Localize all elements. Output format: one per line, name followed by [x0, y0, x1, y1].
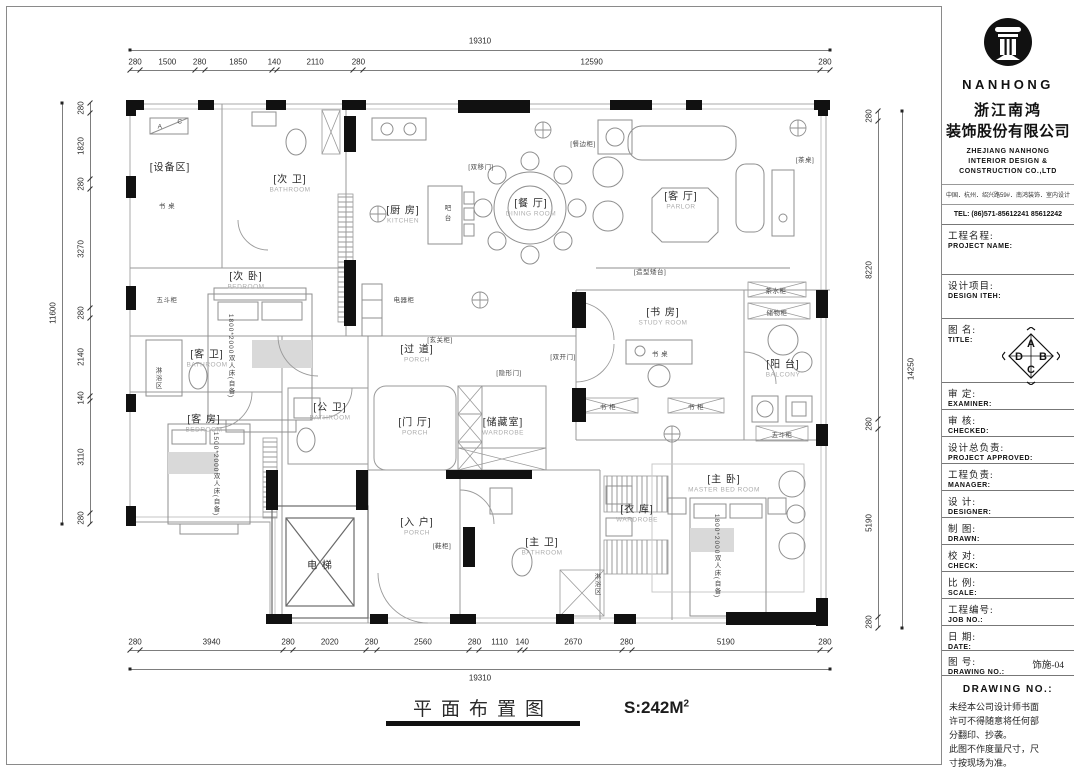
- field-drawn: 制 图:DRAWN:: [942, 518, 1074, 545]
- field-checked: 审 核:CHECKED:: [942, 410, 1074, 437]
- dim-top-seg-3: 1850: [229, 58, 247, 67]
- dim-left-seg-4: 280: [77, 306, 86, 319]
- room-label-second-bath: [次 卫]BATHROOM: [269, 175, 310, 194]
- field-designer: 设 计:DESIGNER:: [942, 491, 1074, 518]
- page: [设备区][次 卫]BATHROOM[次 卧]BEDROOM[厨 房]KITCH…: [0, 0, 1080, 771]
- room-label-study-room: [书 房]STUDY ROOM: [639, 308, 688, 327]
- room-label-equipment-area: [设备区]: [150, 162, 191, 174]
- annotation-sliding-door: [双移门]: [468, 161, 494, 171]
- dim-top-seg-7: 12590: [581, 58, 603, 67]
- dim-bottom-seg-12: 280: [818, 638, 831, 647]
- field-examiner: 审 定:EXAMINER:: [942, 383, 1074, 410]
- room-label-corridor: [过 道]PORCH: [400, 345, 433, 364]
- dim-bottom-seg-5: 2560: [414, 638, 432, 647]
- company-tel: TEL: (86)571-85612241 85612242: [942, 204, 1074, 224]
- annotation-chest-1: 五斗柜: [157, 294, 178, 304]
- company-address: 中国．杭州．绍兴路59#．南鸿装饰．室内设计: [942, 184, 1074, 204]
- annotation-tea-cabinet: 茶水柜: [766, 285, 787, 295]
- room-label-foyer: [门 厅]PORCH: [398, 418, 431, 437]
- svg-text:A: A: [1027, 338, 1035, 350]
- dim-right-seg-3: 5190: [865, 514, 874, 532]
- note-line-0: 未经本公司设计师书面: [949, 701, 1067, 715]
- room-label-public-bath: [公 卫]BATHROOM: [309, 403, 350, 422]
- annotation-bookcase-1: 书 柜: [600, 401, 616, 411]
- dim-left-total: 11600: [49, 302, 58, 324]
- room-label-parlor: [客 厅]PARLOR: [664, 192, 697, 211]
- field-design-item: 设计项目:DESIGN ITEH:: [942, 275, 1074, 319]
- annotation-hall-cabinet: [玄关柜]: [427, 334, 453, 344]
- company-header: NANHONG 浙江南鸿 装饰股份有限公司 ZHEJIANG NANHONG I…: [942, 6, 1074, 224]
- annotation-tea-table: [茶桌]: [796, 154, 815, 164]
- dim-bottom-seg-11: 5190: [717, 638, 735, 647]
- field-title: 图 名:TITLE: A B C D: [942, 319, 1074, 383]
- dim-left-seg-5: 2140: [77, 348, 86, 366]
- annotation-double-door: [双开门]: [550, 351, 576, 361]
- dim-bottom-seg-10: 280: [620, 638, 633, 647]
- dim-right-seg-1: 8220: [865, 261, 874, 279]
- svg-text:C: C: [1027, 364, 1035, 376]
- dim-top-seg-5: 2110: [306, 58, 323, 67]
- dim-right-seg-2: 280: [865, 418, 874, 431]
- annotation-detail-c: C: [177, 119, 182, 126]
- room-label-master-bedroom: [主 卧]MASTER BED ROOM: [688, 475, 760, 494]
- dim-left-seg-3: 3270: [77, 240, 86, 258]
- annotation-hidden-door: [隐形门]: [496, 367, 522, 377]
- dim-bottom-seg-8: 140: [516, 638, 529, 647]
- room-label-kitchen: [厨 房]KITCHEN: [386, 206, 419, 225]
- dim-right-total: 14250: [907, 358, 916, 380]
- dim-left-seg-7: 3110: [77, 448, 86, 465]
- annotation-feature-ledge: [造型矮台]: [634, 266, 667, 276]
- dim-bottom-seg-3: 2020: [321, 638, 339, 647]
- room-label-wardrobe: [衣 库]WARDROBE: [616, 505, 658, 524]
- notes-heading: DRAWING NO.:: [949, 684, 1067, 695]
- annotation-desk-1: 书 桌: [159, 200, 175, 210]
- dim-right-seg-0: 280: [865, 109, 874, 122]
- dim-bottom-seg-1: 3940: [203, 638, 221, 647]
- svg-text:B: B: [1039, 351, 1047, 363]
- annotation-shower-2: 淋浴区: [591, 573, 601, 596]
- annotation-shoe-cabinet: [鞋柜]: [433, 540, 452, 550]
- dim-left-seg-2: 280: [77, 178, 86, 191]
- dim-top-seg-2: 280: [193, 58, 206, 67]
- field-date: 日 期:DATE:: [942, 626, 1074, 651]
- orientation-compass-icon: A B C D: [1002, 327, 1060, 385]
- dim-bottom-seg-7: 1110: [491, 638, 508, 647]
- annotation-chest-2: 五斗柜: [772, 429, 793, 439]
- dim-bottom-seg-9: 2670: [564, 638, 582, 647]
- room-label-storage-room: [储藏室]WARDROBE: [482, 418, 524, 437]
- annotation-bar-counter: 吧 台: [441, 204, 451, 222]
- company-name-cn-2: 装饰股份有限公司: [942, 120, 1074, 141]
- dim-top-seg-0: 280: [128, 58, 141, 67]
- room-label-dining-room: [餐 厅]DINING ROOM: [506, 199, 556, 218]
- dim-top-seg-6: 280: [352, 58, 365, 67]
- brand-name: NANHONG: [942, 77, 1074, 92]
- field-check: 校 对:CHECK:: [942, 545, 1074, 572]
- note-line-3: 此图不作度量尺寸，尺: [949, 743, 1067, 757]
- room-label-balcony: [阳 台]BALCONY: [766, 360, 801, 379]
- dim-bottom-seg-0: 280: [128, 638, 141, 647]
- annotation-desk-2: 书 桌: [652, 348, 668, 358]
- field-job-no: 工程编号:JOB NO.:: [942, 599, 1074, 626]
- room-label-entry: [入 户]PORCH: [400, 518, 433, 537]
- dim-bottom-seg-6: 280: [468, 638, 481, 647]
- dim-left-seg-6: 140: [77, 391, 86, 404]
- note-line-2: 分翻印、抄袭。: [949, 729, 1067, 743]
- notes-section: DRAWING NO.: 未经本公司设计师书面许可不得随意将任何部分翻印、抄袭。…: [942, 676, 1074, 771]
- dim-left-seg-0: 280: [77, 101, 86, 114]
- area-label: S:242M2: [624, 698, 689, 718]
- dim-right-seg-4: 280: [865, 616, 874, 629]
- field-manager: 工程负责:MANAGER:: [942, 464, 1074, 491]
- field-scale: 比 例:SCALE:: [942, 572, 1074, 599]
- dim-bottom-seg-2: 280: [281, 638, 294, 647]
- annotation-sideboard: [餐边柜]: [570, 138, 596, 148]
- annotation-detail-a: A: [158, 124, 163, 131]
- svg-text:D: D: [1015, 351, 1023, 363]
- nanhong-logo-icon: [982, 16, 1034, 68]
- title-block: NANHONG 浙江南鸿 装饰股份有限公司 ZHEJIANG NANHONG I…: [942, 6, 1074, 765]
- floor-plan: [设备区][次 卫]BATHROOM[次 卧]BEDROOM[厨 房]KITCH…: [0, 0, 941, 771]
- title-underline: [386, 721, 580, 726]
- annotation-bed-spec-1: 1800*2000双人床(自备): [225, 314, 235, 398]
- room-label-second-bedroom: [次 卧]BEDROOM: [227, 272, 264, 291]
- room-label-guest-bath: [客 卫]BATHROOM: [186, 350, 227, 369]
- annotation-appliance-cab: 电器柜: [394, 294, 415, 304]
- dim-top-total: 19310: [469, 37, 491, 46]
- field-drawing-no: 图 号:DRAWING NO.:饰施-04: [942, 651, 1074, 676]
- company-name-en: ZHEJIANG NANHONG INTERIOR DESIGN & CONST…: [948, 147, 1068, 177]
- field-project-name: 工程名程:PROJECT NAME:: [942, 225, 1074, 275]
- annotation-bookcase-2: 书 柜: [688, 401, 704, 411]
- room-label-elevator: 电 梯: [307, 560, 333, 572]
- dim-top-seg-4: 140: [268, 58, 281, 67]
- field-rows: 工程名程:PROJECT NAME:设计项目:DESIGN ITEH:图 名:T…: [942, 224, 1074, 676]
- dim-left-seg-8: 280: [77, 512, 86, 525]
- annotation-shower-1: 淋浴区: [152, 367, 162, 390]
- dim-top-seg-8: 280: [818, 58, 831, 67]
- room-label-master-bath: [主 卫]BATHROOM: [521, 538, 562, 557]
- dim-bottom-total: 19310: [469, 674, 491, 683]
- annotation-bed-spec-3: 1800*2000双人床(自备): [711, 514, 721, 598]
- annotation-bed-spec-2: 1500*2000双人床(自备): [210, 432, 220, 516]
- dim-top-seg-1: 1500: [158, 58, 176, 67]
- room-label-guest-room: [客 房]BEDROOM: [185, 415, 222, 434]
- dim-left-seg-1: 1820: [77, 137, 86, 155]
- note-line-4: 寸按现场为准。: [949, 757, 1067, 771]
- drawing-title: 平面布置图: [388, 694, 578, 721]
- field-value-drawing-no: 饰施-04: [1032, 657, 1064, 671]
- company-name-cn-1: 浙江南鸿: [942, 99, 1074, 120]
- floor-plan-graphic: [0, 0, 941, 771]
- dim-bottom-seg-4: 280: [365, 638, 378, 647]
- annotation-storage-cab: 储物柜: [767, 307, 788, 317]
- note-line-1: 许可不得随意将任何部: [949, 715, 1067, 729]
- field-project-approved: 设计总负责:PROJECT APPROVED:: [942, 437, 1074, 464]
